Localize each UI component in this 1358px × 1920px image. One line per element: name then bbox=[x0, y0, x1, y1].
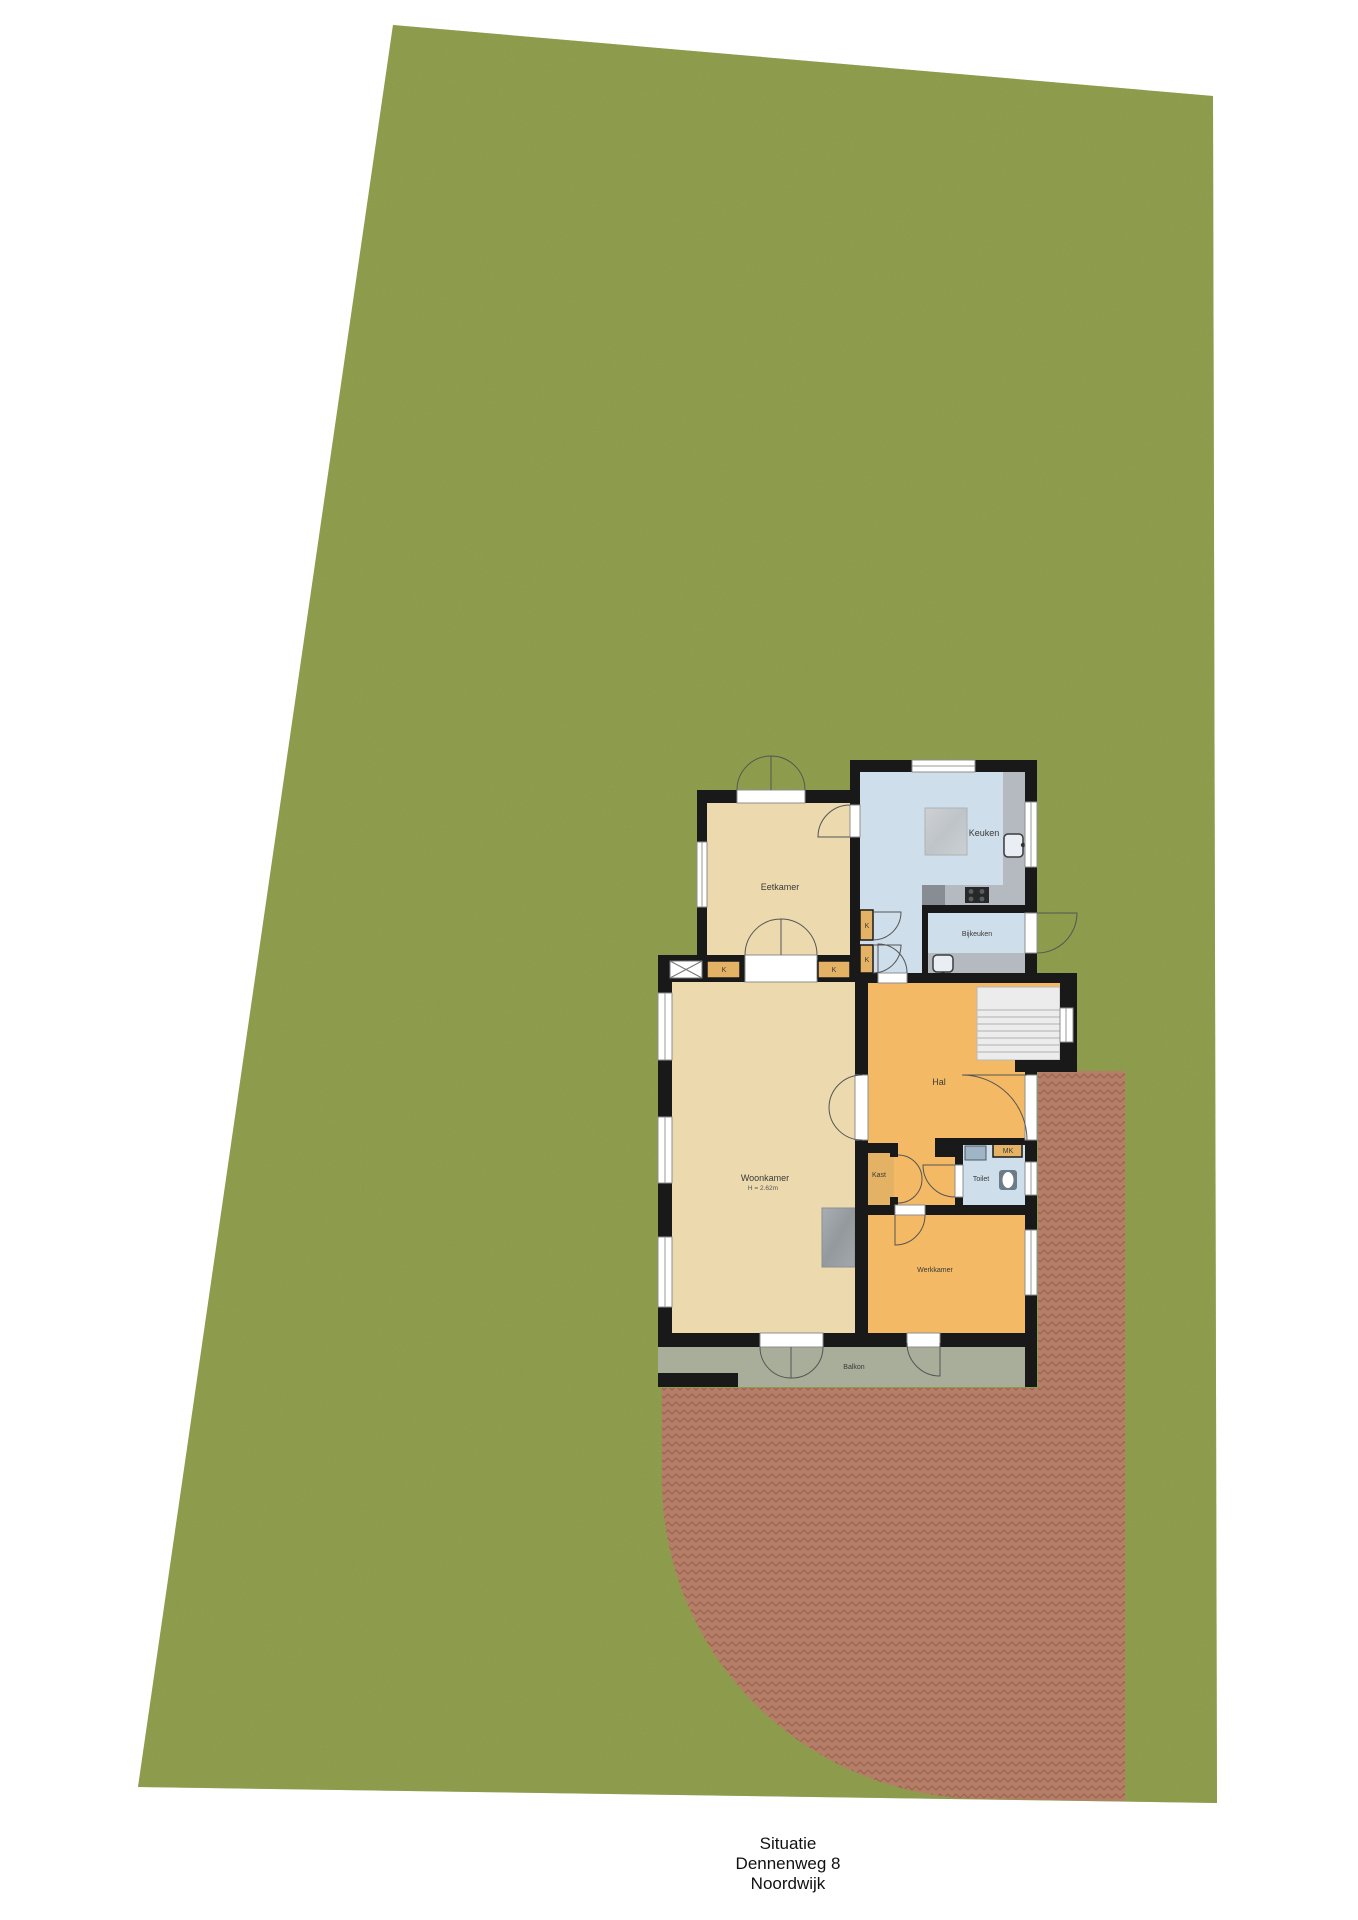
floor-eetkamer bbox=[707, 803, 850, 955]
label-woonkamer-height: H = 2.62m bbox=[748, 1185, 778, 1192]
label-woonkamer: Woonkamer bbox=[741, 1173, 789, 1183]
door-opening-woonkamer-balkon bbox=[760, 1333, 823, 1347]
door-opening-toilet bbox=[955, 1165, 963, 1197]
house-floorplan: Eetkamer Keuken Bijkeuken Woonkamer H = … bbox=[658, 756, 1077, 1387]
kitchen-counter-right bbox=[1003, 772, 1025, 885]
site-plan-drawing: Eetkamer Keuken Bijkeuken Woonkamer H = … bbox=[0, 0, 1358, 1920]
floor-werkkamer bbox=[868, 1215, 1025, 1333]
label-hal: Hal bbox=[932, 1077, 946, 1087]
door-opening-eetkamer-garden bbox=[737, 790, 805, 803]
label-cabinet-k4: K bbox=[865, 957, 870, 964]
label-meterkast: MK bbox=[1003, 1148, 1014, 1155]
kitchen-appliance bbox=[922, 885, 945, 905]
label-balkon: Balkon bbox=[843, 1364, 865, 1371]
door-opening-woonkamer-hal bbox=[855, 1075, 868, 1140]
label-cabinet-k1: K bbox=[722, 967, 727, 974]
label-cabinet-k3: K bbox=[865, 923, 870, 930]
door-opening-backdoor bbox=[1025, 913, 1037, 953]
label-kast: Kast bbox=[872, 1172, 886, 1179]
toilet-basin bbox=[965, 1146, 986, 1160]
bijkeuken-sink bbox=[933, 955, 953, 972]
door-opening-corridor-hal bbox=[878, 973, 907, 983]
title-block: Situatie Dennenweg 8 Noordwijk bbox=[736, 1834, 841, 1894]
door-opening-werkkamer bbox=[895, 1205, 925, 1215]
label-toilet: Toilet bbox=[973, 1176, 989, 1183]
title-street: Dennenweg 8 bbox=[736, 1854, 841, 1874]
stove bbox=[965, 887, 989, 903]
staircase bbox=[977, 987, 1060, 1060]
door-opening-eetkamer-woonkamer bbox=[745, 955, 817, 982]
title-situatie: Situatie bbox=[736, 1834, 841, 1854]
label-keuken: Keuken bbox=[969, 828, 1000, 838]
toilet-bowl bbox=[1003, 1172, 1014, 1188]
title-city: Noordwijk bbox=[736, 1874, 841, 1894]
label-werkkamer: Werkkamer bbox=[917, 1267, 953, 1274]
situatie-plan-page: Eetkamer Keuken Bijkeuken Woonkamer H = … bbox=[0, 0, 1358, 1920]
kitchen-sink bbox=[1004, 834, 1023, 857]
label-cabinet-k2: K bbox=[832, 967, 837, 974]
door-opening-eetkamer-keuken bbox=[850, 805, 860, 837]
label-eetkamer: Eetkamer bbox=[761, 882, 800, 892]
label-bijkeuken: Bijkeuken bbox=[962, 931, 992, 938]
niche-crossbox bbox=[670, 961, 702, 978]
fireplace bbox=[822, 1208, 855, 1267]
floor-woonkamer bbox=[672, 982, 855, 1333]
kitchen-island bbox=[925, 808, 967, 855]
door-opening-werkkamer-balkon bbox=[907, 1333, 940, 1347]
